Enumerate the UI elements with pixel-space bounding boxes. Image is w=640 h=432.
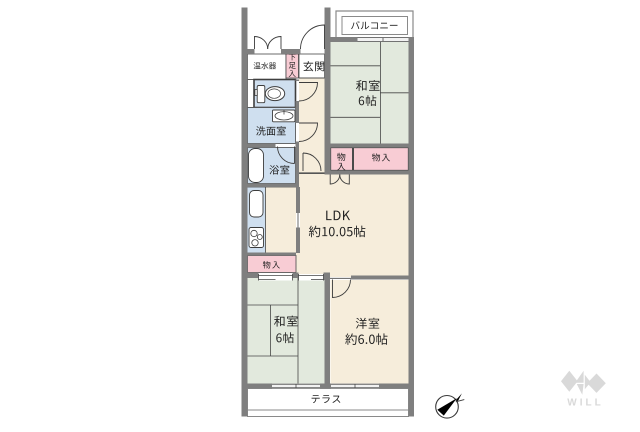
svg-text:WILL: WILL bbox=[567, 398, 603, 409]
